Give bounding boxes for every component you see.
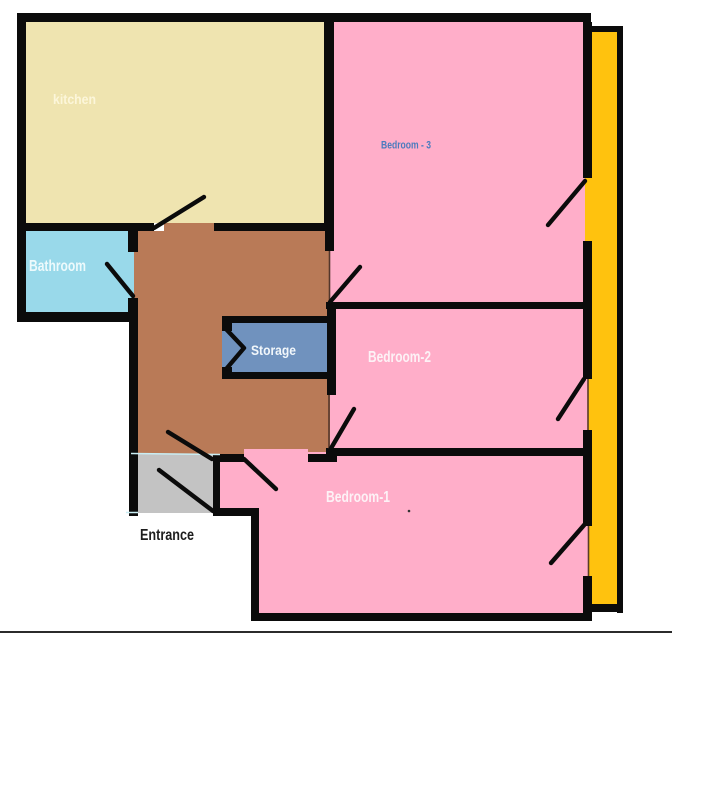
svg-text:kitchen: kitchen [53, 91, 96, 107]
svg-text:Bathroom: Bathroom [29, 258, 86, 275]
svg-text:Bedroom - 3: Bedroom - 3 [381, 140, 431, 152]
svg-text:Bedroom-1: Bedroom-1 [326, 489, 390, 506]
svg-text:Storage: Storage [251, 343, 296, 358]
svg-text:Entrance: Entrance [140, 527, 194, 544]
svg-text:Bedroom-2: Bedroom-2 [368, 349, 431, 366]
